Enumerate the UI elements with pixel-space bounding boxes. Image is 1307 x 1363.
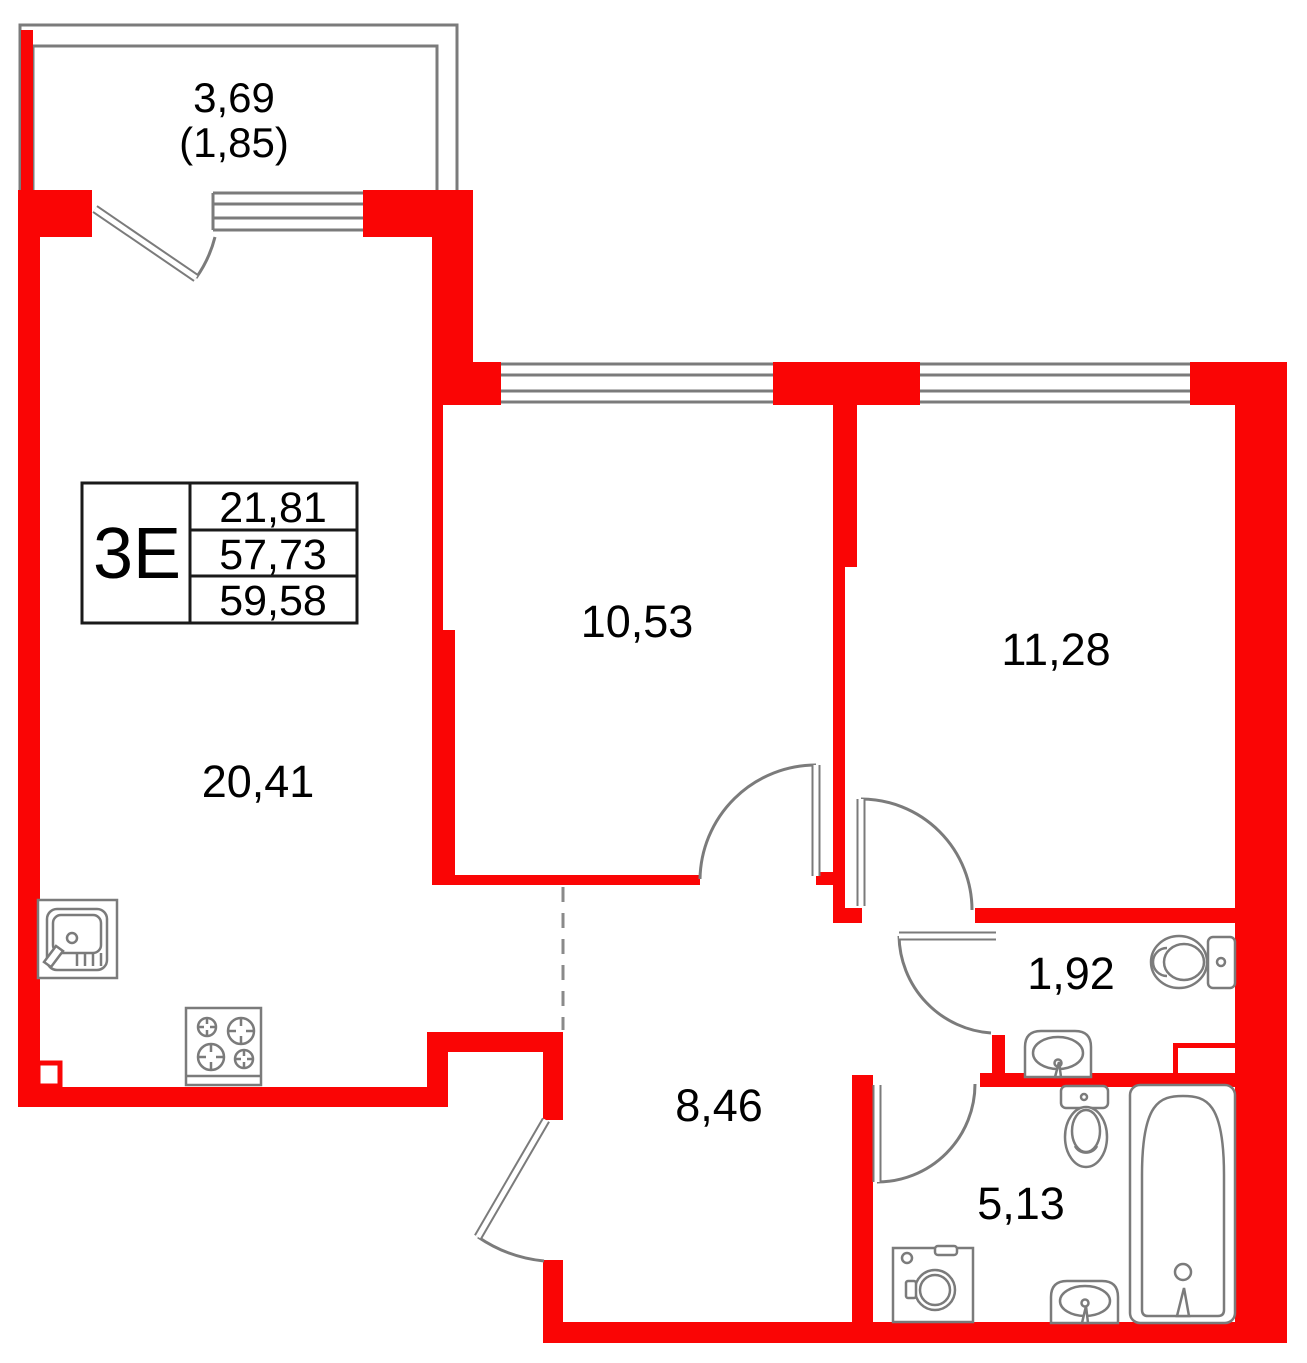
top-right-corner-wall bbox=[1190, 362, 1287, 405]
entry-door bbox=[478, 1120, 546, 1261]
wc-sink-icon bbox=[1025, 1031, 1091, 1077]
balcony-reduced-area-label: (1,85) bbox=[179, 119, 289, 166]
shaft-notch-left-edge bbox=[1173, 1043, 1178, 1075]
top-wall-right-block bbox=[363, 190, 473, 237]
floor-plan-canvas: 3Е 21,81 57,73 59,58 3,69 (1,85) 20,41 1… bbox=[0, 0, 1307, 1363]
interroom-wall-thin bbox=[833, 567, 845, 908]
living-kitchen-area-label: 20,41 bbox=[202, 756, 315, 807]
bathroom-door bbox=[877, 1084, 975, 1182]
right-outer-wall bbox=[1235, 405, 1287, 1343]
door-arc bbox=[899, 936, 991, 1033]
wc-area-label: 1,92 bbox=[1027, 948, 1115, 999]
unit-info-table: 3Е 21,81 57,73 59,58 bbox=[82, 483, 357, 625]
room1-bottom-wall bbox=[432, 875, 700, 885]
interroom-wall-thick bbox=[833, 405, 857, 567]
kitchen-bottom-wall bbox=[18, 1087, 427, 1107]
kitchen-sink-icon bbox=[38, 900, 117, 978]
top-wall-pier-b bbox=[773, 362, 920, 405]
balcony-area-label: 3,69 bbox=[193, 74, 275, 121]
unit-area-row2: 57,73 bbox=[219, 531, 327, 579]
balcony-left-wall bbox=[21, 30, 33, 190]
bathtub-icon bbox=[1130, 1085, 1235, 1323]
door-arc bbox=[877, 1084, 975, 1182]
stove-icon bbox=[186, 1008, 261, 1085]
washing-machine-icon bbox=[893, 1246, 973, 1322]
floor-plan-page: 3Е 21,81 57,73 59,58 3,69 (1,85) 20,41 1… bbox=[0, 0, 1307, 1363]
door-arc bbox=[861, 799, 972, 910]
door-arc bbox=[478, 1237, 544, 1261]
room2-area-label: 11,28 bbox=[1001, 624, 1110, 675]
left-outer-wall bbox=[18, 190, 40, 1107]
room1-door bbox=[700, 765, 816, 879]
wc-top-wall bbox=[975, 908, 1235, 923]
wc-toilet-icon bbox=[1151, 936, 1235, 988]
bottom-outer-wall bbox=[543, 1322, 1287, 1343]
room1-area-label: 10,53 bbox=[581, 596, 694, 647]
bathroom-toilet-icon bbox=[1061, 1086, 1108, 1167]
corner-column-outline bbox=[38, 1063, 60, 1086]
unit-area-row1: 21,81 bbox=[219, 484, 327, 532]
kitchen-room1-wall-thin bbox=[432, 405, 443, 633]
door-arc bbox=[700, 765, 816, 879]
shaft-notch-top-edge bbox=[1173, 1043, 1235, 1048]
room2-door bbox=[861, 799, 972, 910]
door-arc bbox=[196, 237, 215, 278]
wc-door bbox=[899, 936, 996, 1033]
entry-step-horizontal-wall bbox=[427, 1032, 563, 1052]
room1-window bbox=[501, 364, 773, 402]
room2-window bbox=[920, 364, 1190, 402]
unit-type-label: 3Е bbox=[93, 514, 181, 594]
top-wall-pier-a bbox=[432, 362, 501, 405]
bathroom-area-label: 5,13 bbox=[977, 1178, 1065, 1229]
bathroom-sink-icon bbox=[1051, 1281, 1118, 1323]
entry-wall-upper bbox=[543, 1032, 563, 1120]
balcony-door bbox=[95, 209, 215, 278]
balcony-window bbox=[213, 193, 363, 230]
unit-area-row3: 59,58 bbox=[219, 577, 327, 625]
kitchen-room1-pier bbox=[432, 630, 455, 877]
hall-bathroom-wall bbox=[852, 1075, 873, 1343]
room2-bottom-stub bbox=[833, 908, 862, 923]
hallway-area-label: 8,46 bbox=[675, 1080, 763, 1131]
